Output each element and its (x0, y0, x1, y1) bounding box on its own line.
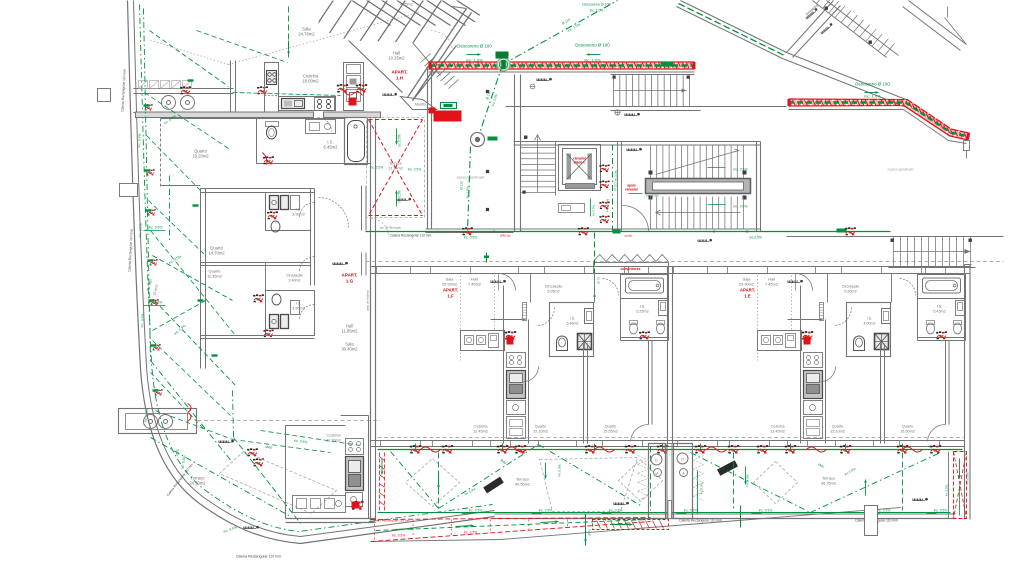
svg-text:1.G: 1.G (346, 279, 354, 284)
svg-text:inc 0.5%: inc 0.5% (965, 472, 969, 485)
svg-text:30.40m2: 30.40m2 (341, 347, 358, 352)
svg-text:inc. 0.5%: inc. 0.5% (392, 534, 405, 538)
svg-text:APART.: APART. (740, 288, 755, 293)
svg-text:inc. 0.5%: inc. 0.5% (408, 168, 421, 172)
svg-text:inc. 1.0%: inc. 1.0% (864, 94, 881, 99)
svg-text:inc. 0.5%: inc. 0.5% (877, 509, 891, 513)
svg-text:7.45m2: 7.45m2 (468, 282, 481, 287)
svg-text:espaço ajardinado: espaço ajardinado (887, 168, 913, 172)
svg-text:19.20m2: 19.20m2 (192, 154, 209, 159)
svg-text:12.45m2: 12.45m2 (473, 430, 488, 434)
svg-text:inc. 0.5%: inc. 0.5% (759, 509, 773, 513)
svg-text:inc. 1.0%: inc. 1.0% (584, 58, 601, 63)
svg-text:I.S.: I.S. (296, 302, 302, 306)
svg-text:1.E: 1.E (744, 294, 751, 299)
svg-text:Ø 75: Ø 75 (596, 277, 600, 284)
svg-text:Ø 110: Ø 110 (459, 181, 463, 190)
svg-text:Quarto: Quarto (902, 425, 914, 429)
svg-text:inc. 0.5%: inc. 0.5% (469, 509, 483, 513)
svg-text:Descareno Ø 100: Descareno Ø 100 (582, 3, 610, 7)
svg-text:6.45m2: 6.45m2 (324, 145, 339, 150)
svg-text:24.78m2: 24.78m2 (298, 32, 315, 37)
svg-text:Descareno Ø 100: Descareno Ø 100 (457, 44, 492, 49)
svg-text:Caleira Rectangular 110 mm: Caleira Rectangular 110 mm (236, 555, 281, 559)
svg-text:APART.: APART. (443, 288, 458, 293)
svg-text:5.46m2: 5.46m2 (567, 322, 579, 326)
svg-text:inc 0.5%: inc 0.5% (591, 204, 595, 216)
svg-text:Quarto: Quarto (832, 425, 844, 429)
svg-text:11.34m2: 11.34m2 (388, 167, 403, 171)
svg-text:inc.0.5%: inc.0.5% (749, 236, 762, 240)
svg-text:12.10m2: 12.10m2 (830, 430, 845, 434)
svg-text:25.93m2: 25.93m2 (442, 282, 457, 287)
svg-text:inc 0.5%: inc 0.5% (398, 134, 402, 146)
svg-text:11.35m2: 11.35m2 (207, 274, 222, 279)
svg-text:Descareno Ø 100: Descareno Ø 100 (575, 43, 610, 48)
svg-text:12.10m2: 12.10m2 (533, 430, 548, 434)
svg-text:Blade C: Blade C (574, 161, 587, 165)
svg-text:inc. 0.5%: inc. 0.5% (734, 205, 748, 209)
svg-text:compridores: compridores (621, 267, 641, 271)
svg-text:Descareno Ø 100: Descareno Ø 100 (855, 82, 890, 87)
svg-text:porão: porão (625, 234, 633, 238)
svg-text:Terraço: Terraço (389, 162, 402, 166)
svg-text:Circulação: Circulação (545, 285, 562, 289)
svg-text:inc. 0.5%: inc. 0.5% (684, 509, 698, 513)
svg-text:24.50m2: 24.50m2 (189, 481, 206, 486)
svg-text:40.50m2: 40.50m2 (515, 482, 530, 487)
svg-text:D: D (655, 459, 658, 463)
svg-text:5.05m2: 5.05m2 (547, 290, 559, 294)
svg-text:5.45m2: 5.45m2 (933, 310, 945, 314)
svg-text:APART.: APART. (392, 70, 408, 75)
svg-text:Quarto: Quarto (605, 425, 617, 429)
svg-text:inc 1.0%: inc 1.0% (465, 186, 469, 198)
svg-text:3.90m2: 3.90m2 (292, 213, 305, 217)
svg-text:inc 0.5%: inc 0.5% (557, 464, 561, 477)
svg-text:Cozinha: Cozinha (474, 425, 489, 429)
svg-text:4.00m2: 4.00m2 (864, 322, 876, 326)
svg-text:Circulação: Circulação (842, 285, 859, 289)
svg-text:I.S.: I.S. (296, 208, 302, 212)
svg-text:inc 0.5%: inc 0.5% (745, 474, 749, 487)
svg-text:14.70m2: 14.70m2 (208, 251, 225, 256)
svg-text:18.00m2: 18.00m2 (302, 79, 319, 84)
svg-text:Circulação: Circulação (286, 274, 303, 278)
svg-text:15.55m2: 15.55m2 (603, 430, 618, 434)
svg-text:25.90m2: 25.90m2 (739, 282, 754, 287)
svg-text:7.45m2: 7.45m2 (765, 282, 778, 287)
svg-text:inc 0.5%: inc 0.5% (944, 484, 948, 496)
svg-text:inc. 0.5%: inc. 0.5% (539, 509, 553, 513)
svg-text:elevador: elevador (625, 188, 639, 192)
svg-text:inc. 0.5%: inc. 0.5% (934, 509, 948, 513)
svg-text:16.50m2: 16.50m2 (900, 430, 915, 434)
svg-text:I.S.: I.S. (937, 305, 943, 309)
svg-text:I.S.: I.S. (867, 317, 872, 321)
svg-text:inc. 0.5%: inc. 0.5% (609, 509, 623, 513)
svg-text:Cozinha: Cozinha (327, 434, 342, 438)
svg-text:APART.: APART. (342, 273, 358, 278)
svg-text:10.25m2: 10.25m2 (388, 56, 405, 61)
svg-text:grad. de limpeza: grad. de limpeza (366, 290, 370, 311)
svg-text:Montra: Montra (415, 103, 426, 107)
svg-text:espaço ajardinado: espaço ajardinado (457, 176, 485, 180)
svg-text:5.90m2: 5.90m2 (844, 290, 856, 294)
svg-text:4.25m2: 4.25m2 (400, 3, 413, 7)
svg-text:11.20m2: 11.20m2 (326, 439, 341, 443)
svg-text:inc. 0.5%: inc. 0.5% (464, 236, 478, 240)
svg-text:3.90m2: 3.90m2 (292, 307, 305, 311)
svg-text:Cozinha: Cozinha (771, 425, 786, 429)
svg-text:Ø 75: Ø 75 (587, 529, 591, 536)
svg-text:13.45m2: 13.45m2 (770, 430, 785, 434)
svg-text:11.85m2: 11.85m2 (342, 329, 359, 334)
svg-text:Quarto: Quarto (535, 425, 547, 429)
svg-text:inc. 0.5%: inc. 0.5% (149, 226, 163, 230)
svg-text:Caleira Rectangular 110 mm: Caleira Rectangular 110 mm (390, 234, 432, 238)
svg-text:(ac. de Biologia): (ac. de Biologia) (380, 226, 402, 230)
svg-text:5.25m2: 5.25m2 (636, 310, 648, 314)
svg-text:D: D (681, 458, 684, 462)
svg-text:I.S.: I.S. (570, 317, 575, 321)
svg-text:inc. 0.5%: inc. 0.5% (370, 166, 383, 170)
svg-text:Ø40 dto: Ø40 dto (500, 234, 511, 238)
svg-text:2.40m2: 2.40m2 (289, 279, 301, 283)
svg-text:I.S.: I.S. (640, 305, 646, 309)
svg-text:inc. 0.5%: inc. 0.5% (605, 199, 609, 212)
svg-text:36.25m2: 36.25m2 (821, 481, 836, 486)
svg-text:1.H: 1.H (396, 76, 403, 81)
svg-text:1.F: 1.F (447, 294, 454, 299)
svg-text:inc. 0.5%: inc. 0.5% (149, 301, 163, 305)
svg-text:inc. 0.5%: inc. 0.5% (734, 168, 748, 172)
svg-text:inc. 1.0%: inc. 1.0% (466, 58, 483, 63)
svg-text:inc. 0.5%: inc. 0.5% (464, 531, 477, 535)
